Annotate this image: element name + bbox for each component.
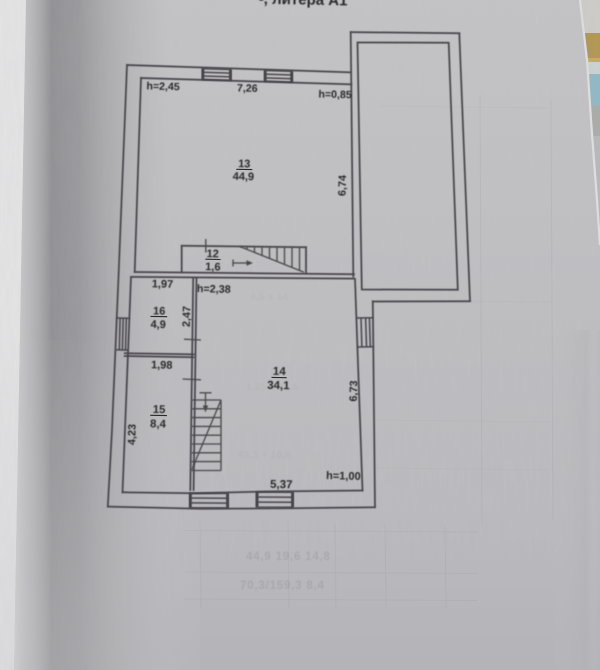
svg-text:h=1,00: h=1,00 — [326, 470, 361, 483]
svg-text:5,37: 5,37 — [270, 479, 293, 492]
svg-text:16: 16 — [153, 305, 166, 317]
svg-text:13: 13 — [238, 158, 251, 170]
svg-text:14: 14 — [273, 366, 287, 378]
svg-text:h=2,38: h=2,38 — [197, 283, 231, 296]
svg-text:h=0,85: h=0,85 — [318, 88, 352, 101]
svg-text:4,23: 4,23 — [126, 424, 139, 445]
svg-text:1,97: 1,97 — [152, 278, 174, 291]
svg-text:6,73: 6,73 — [348, 380, 361, 401]
svg-text:4,5 х 14: 4,5 х 14 — [250, 291, 288, 303]
svg-text:4,9: 4,9 — [150, 319, 166, 331]
svg-text:1,98: 1,98 — [151, 359, 173, 372]
svg-text:h=2,45: h=2,45 — [146, 80, 180, 93]
svg-text:8,4: 8,4 — [150, 418, 167, 430]
svg-text:43,1 + 10,6: 43,1 + 10,6 — [238, 449, 291, 461]
svg-text:6,74: 6,74 — [337, 175, 350, 196]
svg-text:34,1: 34,1 — [267, 380, 290, 393]
svg-text:2,47: 2,47 — [181, 306, 194, 327]
svg-text:7,26: 7,26 — [237, 82, 258, 95]
svg-text:44,9: 44,9 — [233, 171, 255, 184]
svg-text:70,3/159,3 8,4: 70,3/159,3 8,4 — [240, 580, 325, 592]
svg-text:15: 15 — [153, 404, 166, 416]
svg-text:12: 12 — [206, 248, 219, 260]
svg-text:1,6: 1,6 — [205, 261, 221, 273]
svg-text:44,9 19,6 14,8: 44,9 19,6 14,8 — [246, 551, 331, 563]
